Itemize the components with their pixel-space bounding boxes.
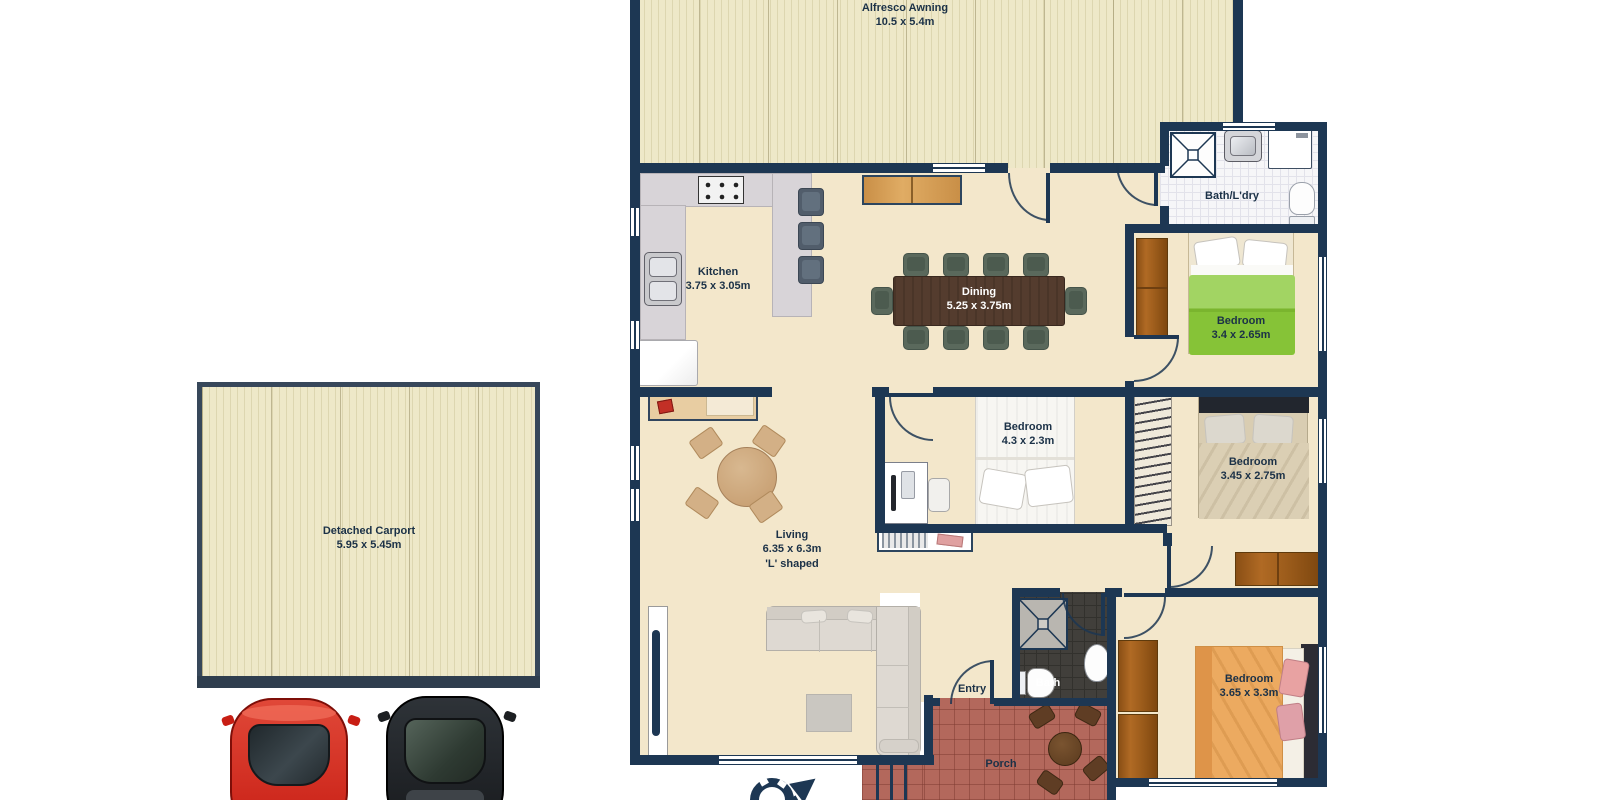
computer-monitor [891,475,896,511]
wall-segment [1125,224,1169,233]
wall-segment [1012,592,1020,702]
window [932,163,986,173]
dining-chair [983,253,1009,277]
floor-plan: Detached Carport 5.95 x 5.45m [0,0,1600,800]
dining-chair [903,253,929,277]
car-red-glass [248,724,330,786]
kitchen-stool [798,256,824,284]
wall-segment [630,0,640,173]
bedroom-green-dims: 3.4 x 2.65m [1191,328,1291,342]
living-dims: 6.35 x 6.3m [732,542,852,556]
sofa-seam [877,665,909,666]
car-black-mirror-left [377,710,391,723]
carport-name: Detached Carport [288,524,450,538]
door-leaf [1046,173,1050,223]
car-red-mirror-left [221,714,235,727]
shower-x-icon [1020,600,1066,648]
wall-segment [630,755,720,765]
wall-segment [1107,592,1116,800]
bedroom-right-name: Bedroom [1198,455,1308,469]
window [1318,646,1327,734]
car-black-glass [404,718,486,784]
step-line [890,765,893,800]
shower-x-icon [1172,134,1214,176]
shower [1018,598,1068,650]
wall-segment [875,524,1167,533]
books [882,533,928,548]
bedroom-front-name: Bedroom [1197,672,1301,686]
wardrobe-hanging-rail [1134,394,1172,526]
wall-segment [630,163,932,173]
wardrobe [1118,714,1158,786]
door-leaf [1167,544,1171,588]
window [1318,418,1327,484]
bed-fold [976,457,1074,460]
door-leaf [1101,593,1105,636]
window [630,488,640,522]
bath-name: Bath [1036,677,1060,689]
dining-chair [1065,287,1087,315]
entry-name: Entry [958,683,986,695]
carport-beam [197,676,540,688]
washer-panel [1296,133,1308,138]
window [1318,256,1327,352]
pillow [1252,414,1294,447]
car-black-rear-window [406,790,484,800]
sofa-right [876,606,921,756]
dresser [1235,552,1321,586]
dining-chair [871,287,893,315]
sofa-cushion [846,609,873,624]
bath-laundry-name: Bath/L'dry [1205,190,1259,202]
compass-ring [750,778,794,800]
sideboard-divider [911,177,913,203]
sofa-seam [819,620,820,652]
entry-label: Entry [944,682,1000,696]
kitchen-stool [798,188,824,216]
sink-basin [1230,136,1256,156]
step-line [876,765,879,800]
computer-tower [901,471,915,499]
wardrobe [1118,640,1158,712]
wall-segment [1160,224,1322,233]
window [630,207,640,237]
shower [1170,132,1216,178]
cooktop [698,176,744,204]
step-line [904,765,907,800]
pillow-pink [1276,702,1307,741]
carport-label: Detached Carport 5.95 x 5.45m [288,524,450,553]
bedroom-green-label: Bedroom 3.4 x 2.65m [1191,314,1291,343]
laundry-sink [1224,130,1262,162]
dining-chair [1023,253,1049,277]
bedroom-mid-name: Bedroom [978,420,1078,434]
sofa-armrest [879,739,919,753]
dining-name: Dining [897,285,1061,299]
pillow [1204,413,1246,446]
wall-segment [1125,233,1134,337]
wall-segment [1233,0,1243,124]
dining-chair [943,253,969,277]
door-leaf [1154,164,1158,206]
sofa-seam [877,707,909,708]
wall-segment [875,397,885,524]
porch-table [1048,732,1082,766]
wardrobe [1136,238,1168,338]
wall-segment [1125,387,1134,530]
car-red-mirror-right [347,714,361,727]
dining-chair [1023,326,1049,350]
washing-machine [1268,129,1312,169]
dining-chair [903,326,929,350]
window [718,755,858,765]
bed-duvet-orange [1195,646,1283,784]
bedroom-mid-dims: 4.3 x 2.3m [978,434,1078,448]
shelf-tray [706,396,754,416]
desk-chair [928,478,950,512]
bedroom-green-name: Bedroom [1191,314,1291,328]
wall-segment [640,387,772,397]
alfresco-name: Alfresco Awning [775,1,1035,15]
sofa-cushion [801,609,828,624]
bedroom-mid-label: Bedroom 4.3 x 2.3m [978,420,1078,449]
dining-chair [943,326,969,350]
north-arrow-icon [738,772,828,800]
wall-segment [924,695,933,765]
wall-segment [858,755,934,765]
door-leaf [889,393,933,397]
bedroom-front-label: Bedroom 3.65 x 3.3m [1197,672,1301,701]
bed-orange [1195,644,1323,786]
dining-chair [983,326,1009,350]
bedroom-right-dims: 3.45 x 2.75m [1198,469,1308,483]
kitchen-dims: 3.75 x 3.05m [660,279,776,293]
book-pink [936,533,963,547]
window [630,320,640,350]
carport-dims: 5.95 x 5.45m [288,538,450,552]
porch-name: Porch [985,758,1016,770]
red-book [657,399,674,415]
bath-label: Bath [1026,676,1070,690]
door-leaf [1124,593,1166,597]
alfresco-dims: 10.5 x 5.4m [775,15,1035,29]
toilet [1288,182,1316,230]
wall-segment [1112,778,1148,787]
pillow [1024,464,1074,507]
window [1222,122,1276,131]
dresser-divider [1277,553,1279,585]
wall-segment [872,387,889,397]
dining-label: Dining 5.25 x 3.75m [897,285,1061,314]
wall-segment [1278,778,1318,787]
wall-segment [1165,588,1322,597]
wall-segment [1276,122,1322,131]
wall-segment [986,163,1008,173]
car-black [386,696,504,800]
fridge [638,340,698,386]
window [1148,778,1278,787]
living-note: 'L' shaped [732,557,852,571]
bedroom-front-dims: 3.65 x 3.3m [1197,686,1301,700]
rug [806,694,852,732]
kitchen-name: Kitchen [660,265,776,279]
living-name: Living [732,528,852,542]
wall-segment [994,698,1107,706]
sideboard [862,175,962,205]
car-black-mirror-right [503,710,517,723]
door-leaf [1134,335,1179,339]
toilet-bowl [1289,182,1315,215]
wall-segment [1160,122,1222,131]
tv [652,630,660,736]
kitchen-label: Kitchen 3.75 x 3.05m [660,265,776,294]
dining-dims: 5.25 x 3.75m [897,299,1061,313]
car-red-hood [242,705,336,721]
pillow [978,467,1028,510]
sofa-seam [871,620,872,652]
sofa-back [908,607,920,755]
window [630,445,640,481]
wardrobe-divider [1137,287,1167,289]
desk [884,462,928,524]
duvet-fold [1196,647,1212,783]
alfresco-label: Alfresco Awning 10.5 x 5.4m [775,1,1035,30]
porch-steps [862,765,924,800]
bedroom-right-label: Bedroom 3.45 x 2.75m [1198,455,1308,484]
kitchen-stool [798,222,824,250]
living-label: Living 6.35 x 6.3m 'L' shaped [732,528,852,571]
car-red [230,698,348,800]
wall-segment [1160,122,1169,166]
bed-white [975,394,1075,526]
bath-laundry-label: Bath/L'dry [1172,189,1292,203]
porch-label: Porch [974,757,1028,771]
